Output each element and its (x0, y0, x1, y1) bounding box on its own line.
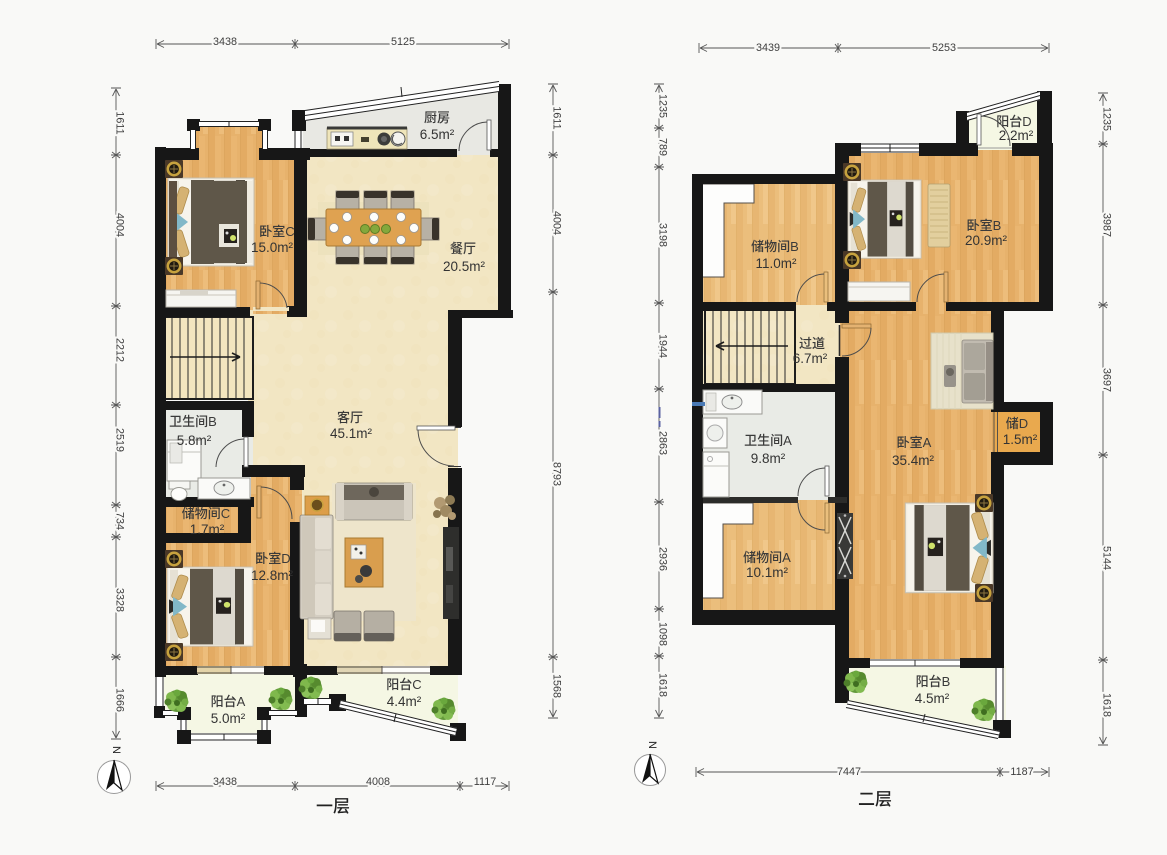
svg-text:6.7m²: 6.7m² (793, 347, 828, 367)
svg-text:1187: 1187 (1010, 766, 1033, 778)
svg-text:N: N (109, 746, 125, 754)
svg-text:7447: 7447 (837, 766, 861, 778)
svg-text:1.5m²: 1.5m² (1003, 428, 1038, 448)
svg-text:5.0m²: 5.0m² (211, 707, 246, 727)
svg-text:卫生间B: 卫生间B (169, 411, 217, 430)
svg-text:3439: 3439 (756, 42, 780, 54)
svg-text:1098: 1098 (657, 622, 669, 646)
svg-text:4.5m²: 4.5m² (915, 687, 950, 707)
svg-text:2863: 2863 (657, 431, 669, 455)
svg-text:一层: 一层 (316, 792, 350, 817)
svg-text:4004: 4004 (551, 211, 563, 235)
svg-text:1117: 1117 (474, 776, 496, 788)
svg-text:4008: 4008 (366, 776, 390, 788)
svg-text:1666: 1666 (114, 688, 126, 712)
svg-text:3328: 3328 (114, 588, 126, 612)
svg-text:11.0m²: 11.0m² (755, 252, 797, 272)
svg-text:20.9m²: 20.9m² (965, 229, 1008, 249)
svg-text:6.5m²: 6.5m² (420, 123, 455, 143)
svg-text:3697: 3697 (1101, 368, 1113, 392)
svg-text:1944: 1944 (657, 334, 669, 358)
svg-text:1618: 1618 (657, 673, 669, 697)
svg-text:1611: 1611 (551, 106, 563, 129)
svg-text:二层: 二层 (858, 785, 892, 810)
svg-text:9.8m²: 9.8m² (751, 447, 786, 467)
svg-text:3438: 3438 (213, 36, 237, 48)
svg-text:1568: 1568 (551, 674, 563, 698)
svg-text:N: N (645, 741, 661, 749)
svg-text:5.8m²: 5.8m² (177, 429, 212, 449)
svg-text:10.1m²: 10.1m² (746, 561, 789, 581)
svg-text:1.7m²: 1.7m² (190, 518, 225, 538)
svg-text:8793: 8793 (551, 462, 563, 486)
svg-text:3198: 3198 (657, 223, 669, 247)
svg-text:3438: 3438 (213, 776, 237, 788)
svg-text:45.1m²: 45.1m² (330, 422, 373, 442)
svg-text:1235: 1235 (1101, 107, 1113, 131)
svg-text:5125: 5125 (391, 36, 415, 48)
svg-text:1618: 1618 (1101, 693, 1113, 717)
svg-text:2936: 2936 (657, 547, 669, 571)
svg-text:2519: 2519 (114, 428, 126, 452)
svg-text:3987: 3987 (1101, 213, 1113, 237)
svg-text:5144: 5144 (1101, 546, 1113, 570)
svg-text:4004: 4004 (114, 213, 126, 237)
svg-text:35.4m²: 35.4m² (892, 449, 935, 469)
svg-text:15.0m²: 15.0m² (251, 236, 294, 256)
svg-text:20.5m²: 20.5m² (443, 255, 486, 275)
svg-text:2212: 2212 (114, 338, 126, 362)
svg-text:4.4m²: 4.4m² (387, 690, 422, 710)
svg-text:1611: 1611 (114, 111, 126, 134)
svg-text:5253: 5253 (932, 42, 956, 54)
svg-text:789: 789 (657, 138, 669, 156)
svg-text:734: 734 (114, 512, 126, 530)
svg-text:1235: 1235 (657, 94, 669, 118)
svg-text:2.2m²: 2.2m² (999, 124, 1034, 144)
svg-text:12.8m²: 12.8m² (251, 564, 294, 584)
